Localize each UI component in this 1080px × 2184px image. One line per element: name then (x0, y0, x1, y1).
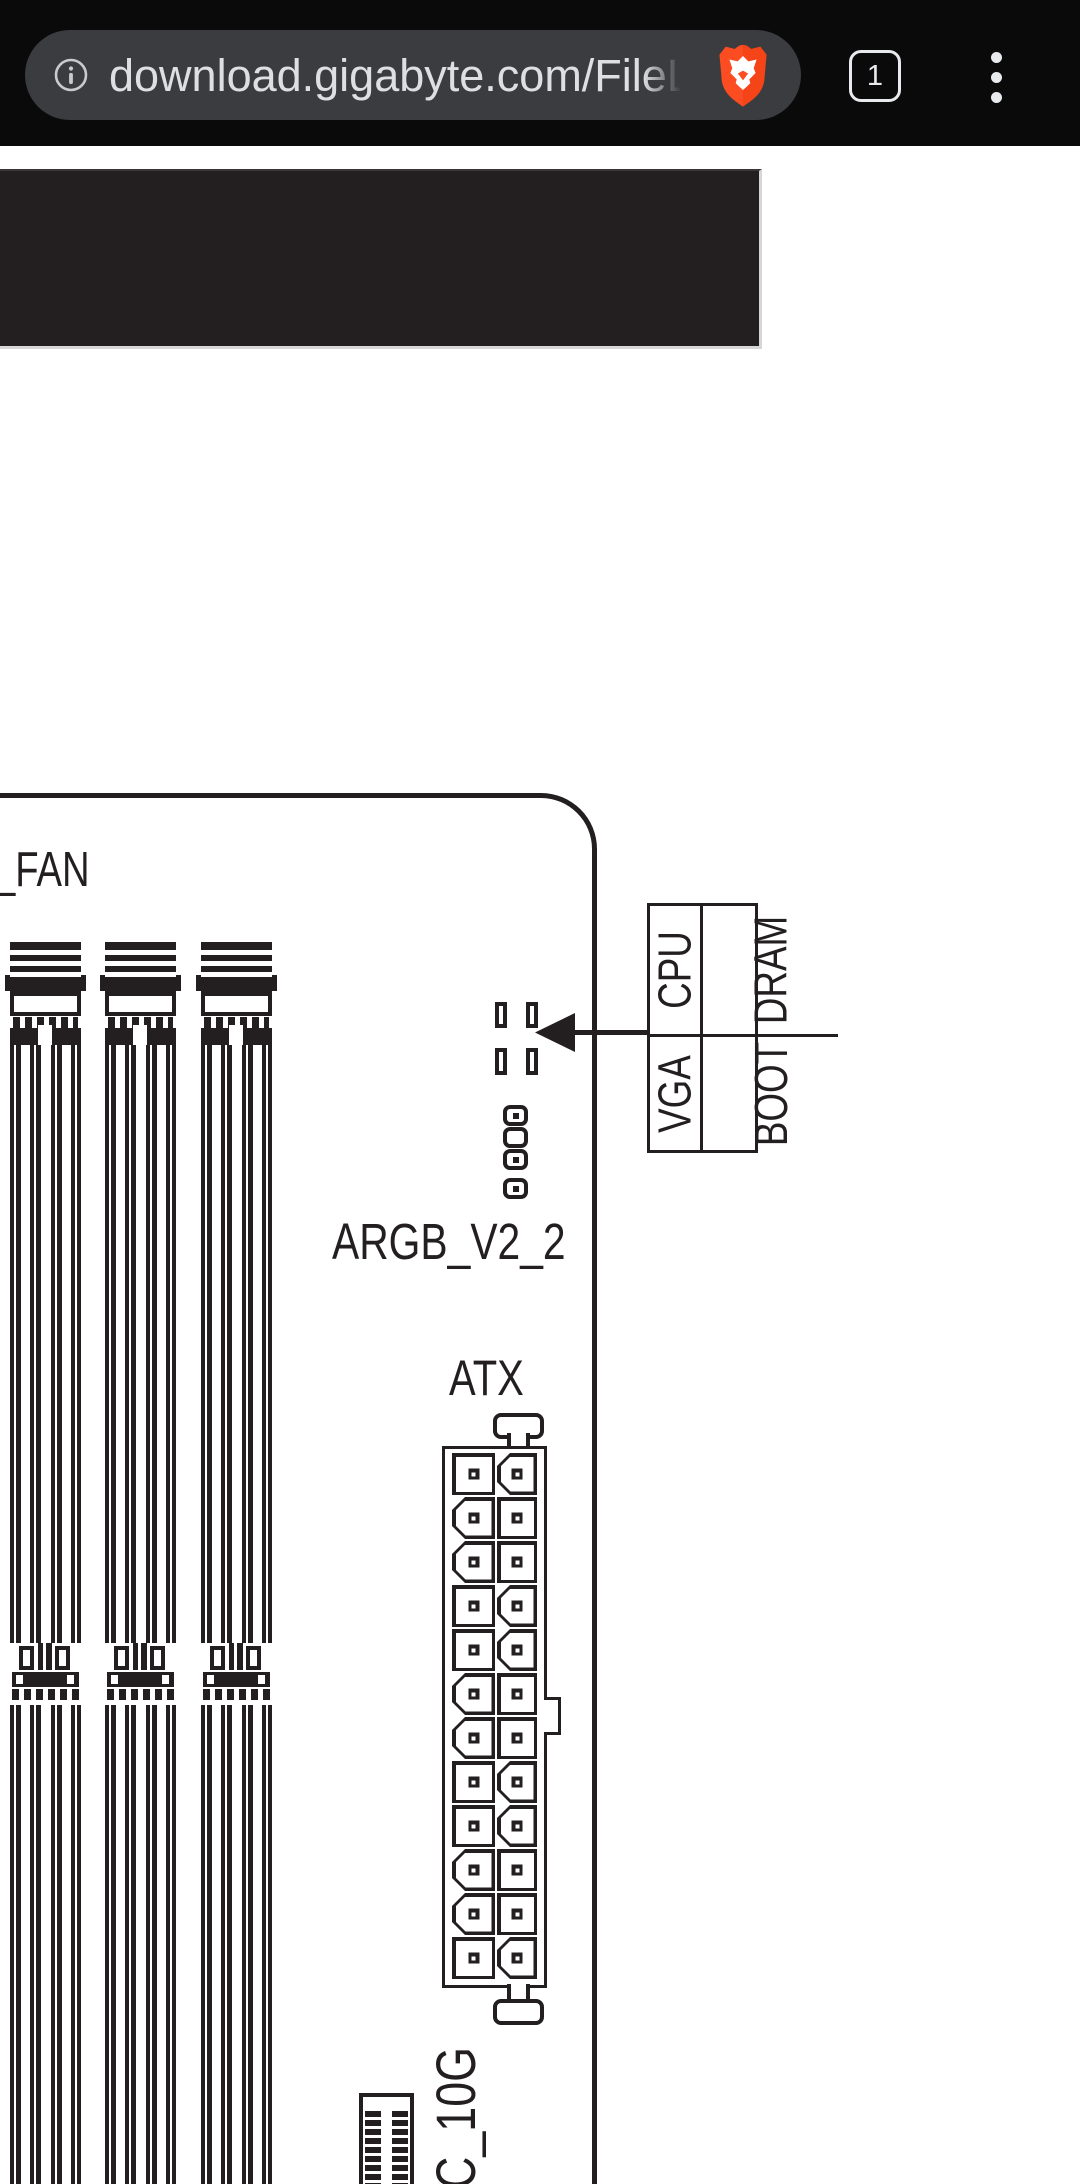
dimm-slot (105, 942, 176, 2184)
cell-cpu: CPU (650, 906, 700, 1034)
atx-pin (452, 1937, 495, 1979)
led-indicator (526, 1048, 538, 1075)
led-indicator (495, 1002, 507, 1028)
usbc-connector (359, 2093, 414, 2184)
atx-pin (452, 1629, 495, 1671)
atx-pin (497, 1673, 537, 1715)
atx-pin (497, 1849, 537, 1891)
atx-pin (497, 1717, 537, 1759)
brave-rewards-icon[interactable] (713, 41, 773, 109)
cell-dram: DRAM (700, 906, 838, 1034)
cell-vga: VGA (650, 1034, 700, 1150)
atx-pin (452, 1585, 495, 1627)
led-indicator (495, 1048, 507, 1075)
arrow-line (572, 1030, 649, 1035)
atx-label: ATX (449, 1353, 524, 1403)
cell-boot: BOOT (700, 1034, 838, 1150)
page-info-icon[interactable] (53, 57, 89, 93)
tab-switcher-button[interactable]: 1 (849, 50, 901, 102)
dimm-slot (10, 942, 81, 2184)
usbc-label: C_10G (428, 2047, 484, 2184)
tab-count: 1 (867, 60, 883, 93)
debug-led-table: CPU DRAM VGA BOOT (647, 903, 758, 1153)
atx-pin (497, 1541, 537, 1583)
url-bar[interactable]: download.gigabyte.com/FileL (25, 30, 801, 120)
usbc-pin-comb (392, 2111, 408, 2184)
fan-label: _FAN (0, 846, 90, 895)
argb-pin (503, 1149, 528, 1170)
atx-pin (497, 1893, 537, 1935)
menu-icon[interactable] (991, 52, 1003, 103)
atx-pin (452, 1453, 495, 1495)
argb-pin (503, 1127, 528, 1148)
atx-pin (497, 1497, 537, 1539)
argb-label: ARGB_V2_2 (332, 1216, 566, 1267)
atx-pin (452, 1761, 495, 1803)
atx-bottom-tab (493, 1999, 544, 2025)
screen: download.gigabyte.com/FileL 1 _FAN ARGB_… (0, 0, 1080, 2184)
led-indicator (526, 1002, 538, 1028)
pdf-dark-panel (0, 169, 762, 349)
atx-pin (452, 1805, 495, 1847)
url-text[interactable]: download.gigabyte.com/FileL (109, 30, 681, 120)
argb-pin (503, 1105, 528, 1126)
argb-pin (503, 1178, 528, 1199)
usbc-pin-comb (365, 2111, 381, 2184)
dimm-slot (201, 942, 272, 2184)
atx-side-latch (544, 1697, 561, 1735)
browser-toolbar: download.gigabyte.com/FileL 1 (0, 0, 1080, 146)
